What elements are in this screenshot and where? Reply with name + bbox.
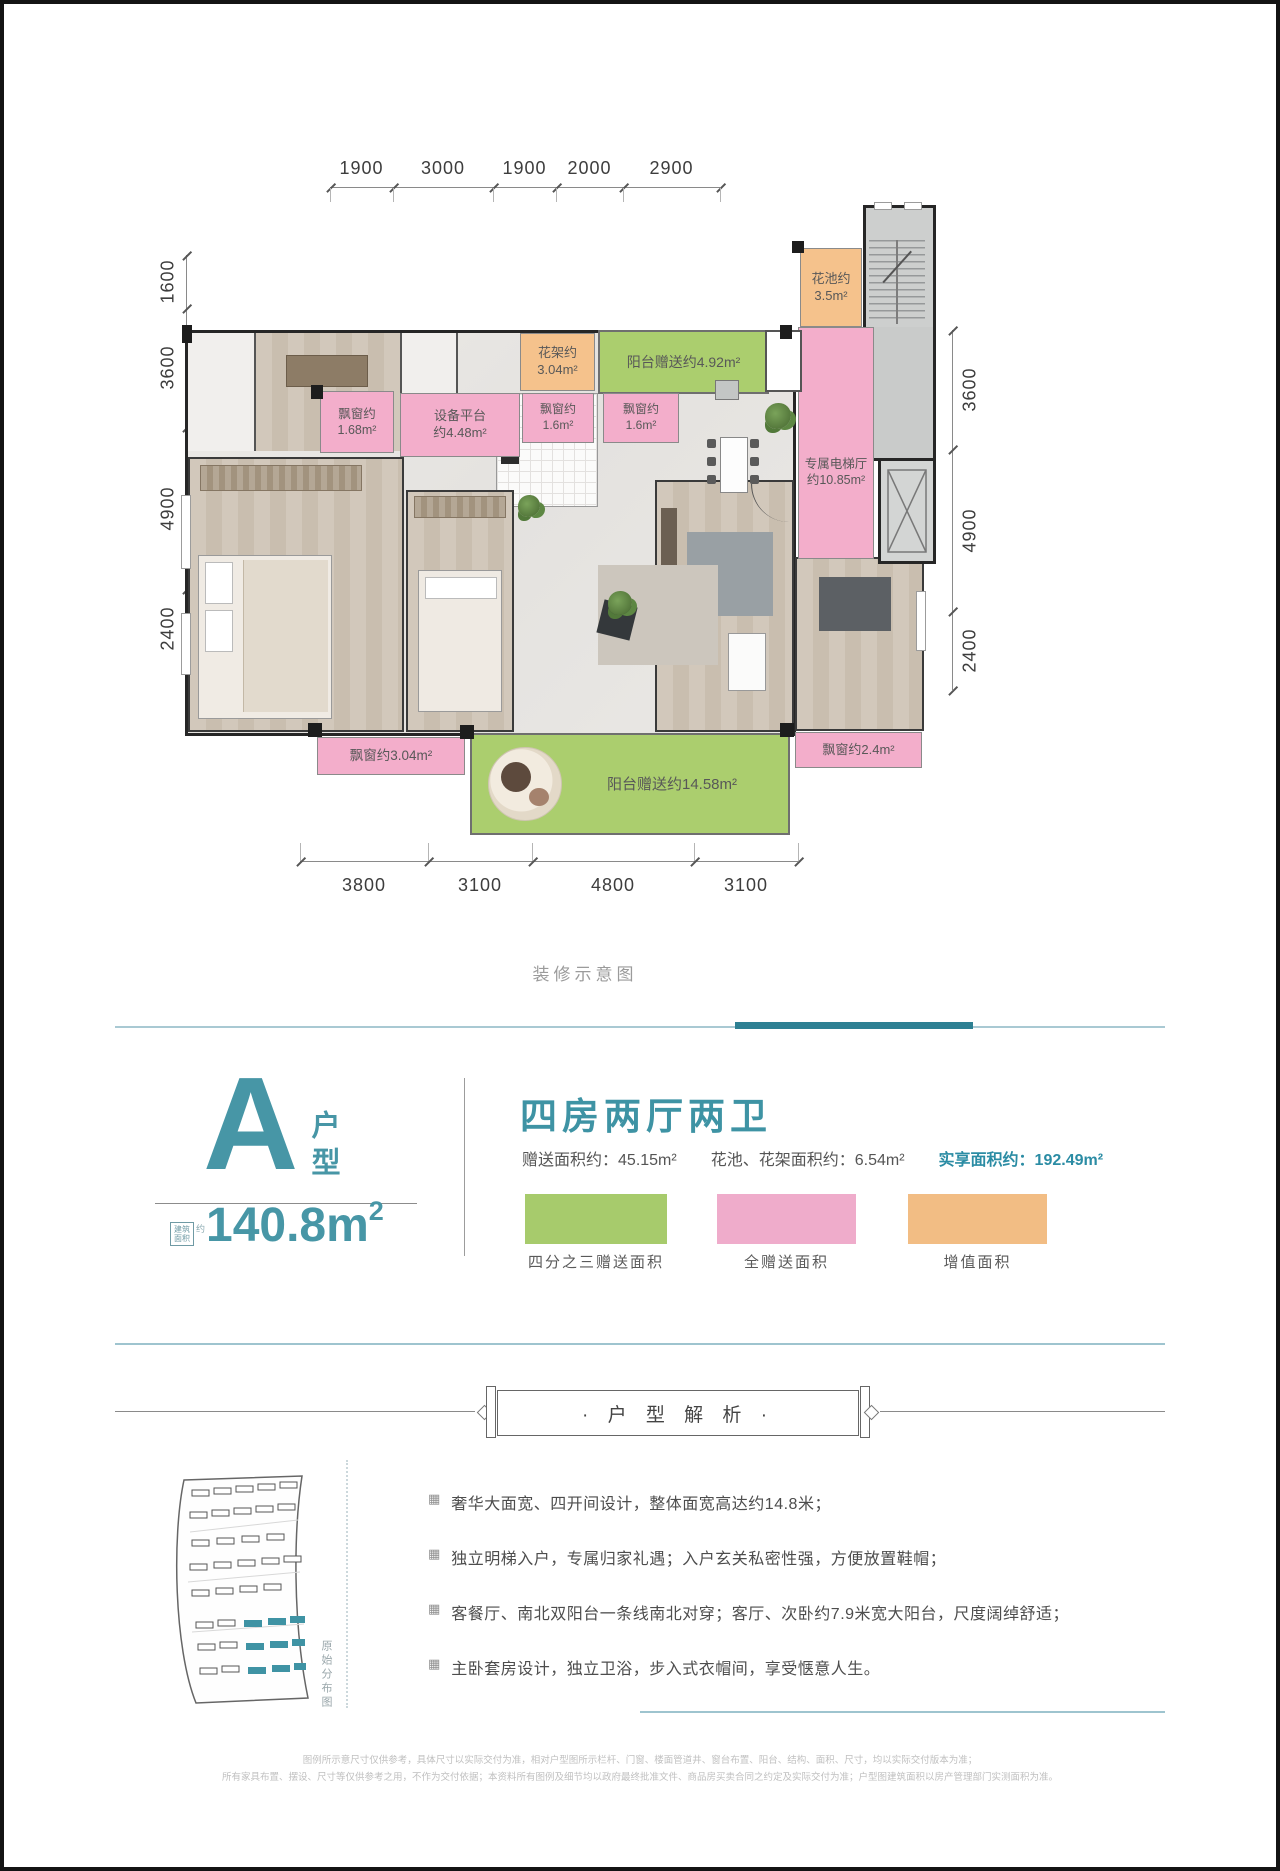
- stat-value: 6.54m²: [855, 1152, 905, 1169]
- wall-segment: [311, 385, 323, 399]
- dimension-label: 2900: [623, 158, 720, 179]
- dimension-label: 4800: [532, 875, 694, 896]
- round-rug: [488, 747, 562, 821]
- chair: [707, 475, 716, 484]
- side-table: [728, 633, 766, 691]
- badge-line2: 面积: [174, 1234, 190, 1243]
- desk: [661, 508, 677, 572]
- wall-segment: [460, 725, 474, 739]
- room-bedroom-4: [795, 557, 924, 731]
- badge-line1: 建筑: [174, 1225, 190, 1234]
- bullet-item: ▦ 主卧套房设计，独立卫浴，步入式衣帽间，享受惬意人生。: [428, 1655, 1078, 1679]
- bay-window-1: 飘窗约 1.68m²: [320, 391, 394, 453]
- extension-line: [532, 843, 533, 861]
- dimension-label: 4900: [960, 491, 981, 571]
- legend-label-pink: 全赠送面积: [717, 1251, 856, 1272]
- dimension-line: [952, 330, 953, 690]
- plan-caption: 装修示意图: [460, 960, 710, 985]
- unit-area: 140.8m2: [206, 1198, 384, 1253]
- bullet-icon: ▦: [428, 1545, 440, 1563]
- bay-window-3-label: 飘窗约: [604, 402, 678, 418]
- ac-unit: [715, 380, 739, 400]
- bay-window-2-label: 飘窗约: [523, 402, 593, 418]
- pillow: [205, 562, 233, 604]
- rug-detail: [501, 762, 531, 792]
- equipment-platform: 设备平台 约4.48m²: [400, 393, 520, 457]
- elevator-x-icon: [881, 461, 933, 561]
- chair: [750, 439, 759, 448]
- extension-line: [300, 843, 301, 861]
- pillow: [425, 577, 497, 599]
- section-divider: [640, 1711, 1165, 1713]
- divider-accent-bar: [735, 1022, 973, 1029]
- bay-window-5: 飘窗约2.4m²: [795, 732, 922, 768]
- wardrobe: [200, 465, 362, 491]
- bullet-item: ▦ 独立明梯入户，专属归家礼遇；入户玄关私密性强，方便放置鞋帽；: [428, 1545, 1078, 1569]
- section-divider: [115, 1026, 1165, 1028]
- badge-approx: 约: [196, 1222, 205, 1235]
- bay-window-3-area: 1.6m²: [604, 418, 678, 434]
- door-arc: [751, 484, 790, 522]
- dimension-tick: [948, 326, 958, 336]
- legend-label-green: 四分之三赠送面积: [525, 1251, 667, 1272]
- bed: [198, 555, 332, 719]
- bay-window-1-area: 1.68m²: [321, 422, 393, 438]
- stair-core-landing: [865, 327, 936, 461]
- disclaimer: 图例所示意尺寸仅供参考，具体尺寸以实际交付为准，相对户型图所示栏杆、门窗、楼面管…: [140, 1752, 1140, 1786]
- dimension-label: 2400: [960, 611, 981, 691]
- blanket: [243, 560, 328, 712]
- entry-nook: [765, 330, 802, 392]
- window: [874, 202, 892, 210]
- stat-flower-area: 花池、花架面积约：6.54m²: [711, 1146, 905, 1170]
- balcony-north-label: 阳台赠送约4.92m²: [600, 353, 767, 371]
- elevator-hall-label: 专属电梯厅: [799, 456, 873, 472]
- stat-label: 花池、花架面积约：: [711, 1152, 855, 1169]
- room-bathroom-1: [188, 333, 256, 451]
- window: [181, 613, 191, 675]
- section-divider: [115, 1343, 1165, 1345]
- wall-segment: [780, 325, 792, 339]
- bullet-item: ▦ 奢华大面宽、四开间设计，整体面宽高达约14.8米；: [428, 1490, 1078, 1514]
- room-bedroom-master: [188, 457, 404, 732]
- bay-window-4: 飘窗约3.04m²: [317, 737, 465, 775]
- balcony-north: 阳台赠送约4.92m²: [598, 330, 769, 394]
- flower-stand-label: 花架约: [521, 345, 594, 362]
- chair: [707, 457, 716, 466]
- wall-segment: [182, 325, 192, 343]
- bay-window-4-label: 飘窗约3.04m²: [318, 747, 464, 765]
- bay-window-2-area: 1.6m²: [523, 418, 593, 434]
- flower-pool-label: 花池约: [801, 271, 861, 288]
- bullet-item: ▦ 客餐厅、南北双阳台一条线南北对穿；客厅、次卧约7.9米宽大阳台，尺度阔绰舒适…: [428, 1600, 1078, 1624]
- window: [916, 591, 926, 651]
- stat-actual-area: 实享面积约：192.49m²: [939, 1146, 1104, 1170]
- vertical-divider: [464, 1078, 465, 1256]
- dimension-tick: [948, 607, 958, 617]
- stairwell: [863, 205, 936, 333]
- banner-line-left: [115, 1411, 475, 1412]
- chair: [707, 439, 716, 448]
- stat-label: 实享面积约：: [939, 1152, 1035, 1169]
- bay-window-2: 飘窗约 1.6m²: [522, 393, 594, 443]
- rooms-title: 四房两厅两卫: [520, 1086, 772, 1140]
- dotted-divider: [346, 1460, 348, 1708]
- stat-value: 192.49m²: [1035, 1152, 1104, 1169]
- disclaimer-line1: 图例所示意尺寸仅供参考，具体尺寸以实际交付为准，相对户型图所示栏杆、门窗、楼面管…: [140, 1752, 1140, 1769]
- chair: [750, 475, 759, 484]
- equipment-platform-area: 约4.48m²: [401, 425, 519, 442]
- area-badge: 建筑 面积 约: [170, 1222, 205, 1246]
- flower-pool-area: 3.5m²: [801, 288, 861, 305]
- dimension-label: 3100: [694, 875, 798, 896]
- stat-gift-area: 赠送面积约：45.15m²: [522, 1146, 677, 1170]
- window: [181, 495, 191, 569]
- elevator-hall-area: 约10.85m²: [799, 472, 873, 488]
- bullet-text: 奢华大面宽、四开间设计，整体面宽高达约14.8米；: [451, 1490, 831, 1514]
- dimension-tick: [948, 445, 958, 455]
- dimension-label: 1900: [493, 158, 556, 179]
- analysis-title: · 户 型 解 析 ·: [582, 1400, 774, 1427]
- unit-letter: A: [203, 1058, 298, 1190]
- disclaimer-line2: 所有家具布置、摆设、尺寸等仅供参考之用，不作为交付依据；本资料所有图例及细节均以…: [140, 1769, 1140, 1786]
- extension-line: [694, 843, 695, 861]
- banner-line-right: [880, 1411, 1165, 1412]
- wall-segment: [792, 241, 804, 253]
- bay-window-5-label: 飘窗约2.4m²: [796, 742, 921, 759]
- bay-window-1-label: 飘窗约: [321, 406, 393, 422]
- bay-window-3: 飘窗约 1.6m²: [603, 393, 679, 443]
- bullet-text: 客餐厅、南北双阳台一条线南北对穿；客厅、次卧约7.9米宽大阳台，尺度阔绰舒适；: [451, 1600, 1069, 1624]
- equipment-platform-label: 设备平台: [401, 408, 519, 425]
- balcony-south-label: 阳台赠送约14.58m²: [572, 775, 772, 795]
- unit-area-value: 140.8m: [206, 1199, 369, 1252]
- bullet-icon: ▦: [428, 1600, 440, 1618]
- legend-label-orange: 增值面积: [908, 1251, 1047, 1272]
- rug-detail: [529, 788, 549, 806]
- wall-segment: [780, 723, 794, 737]
- banner-endcap: [486, 1386, 496, 1438]
- stat-value: 45.15m²: [618, 1152, 677, 1169]
- bullet-text: 主卧套房设计，独立卫浴，步入式衣帽间，享受惬意人生。: [451, 1655, 880, 1679]
- dimension-tick: [948, 686, 958, 696]
- analysis-bullets: ▦ 奢华大面宽、四开间设计，整体面宽高达约14.8米； ▦ 独立明梯入户，专属归…: [428, 1490, 1078, 1710]
- dining-table: [720, 437, 748, 493]
- room-bedroom-2: [406, 490, 514, 732]
- bullet-icon: ▦: [428, 1655, 440, 1673]
- dimension-line: [300, 861, 798, 862]
- dimension-label: 2000: [556, 158, 623, 179]
- rug: [819, 577, 891, 631]
- dimension-label: 3600: [960, 350, 981, 430]
- elevator-shaft: [878, 458, 936, 564]
- bullet-icon: ▦: [428, 1490, 440, 1508]
- dimension-label: 1900: [330, 158, 393, 179]
- extension-line: [428, 843, 429, 861]
- desk: [286, 355, 368, 387]
- dimension-label: 3000: [393, 158, 493, 179]
- dimension-label: 3800: [300, 875, 428, 896]
- extension-line: [798, 843, 799, 861]
- bullet-text: 独立明梯入户，专属归家礼遇；入户玄关私密性强，方便放置鞋帽；: [451, 1545, 946, 1569]
- site-plan-caption: 原始分布图: [318, 1640, 334, 1710]
- pillow: [205, 610, 233, 652]
- legend-swatch-green: [525, 1194, 667, 1244]
- elevator-hall: 专属电梯厅 约10.85m²: [798, 327, 874, 559]
- analysis-banner: · 户 型 解 析 ·: [497, 1390, 859, 1436]
- stat-label: 赠送面积约：: [522, 1152, 618, 1169]
- unit-area-sup: 2: [369, 1196, 384, 1226]
- wardrobe: [414, 496, 506, 518]
- site-plan-sketch: [162, 1472, 317, 1712]
- stair-divider: [896, 240, 898, 324]
- legend-swatch-orange: [908, 1194, 1047, 1244]
- stats-row: 赠送面积约：45.15m² 花池、花架面积约：6.54m² 实享面积约：192.…: [522, 1146, 1103, 1170]
- dimension-label: 3100: [428, 875, 532, 896]
- flower-stand: 花架约 3.04m²: [520, 333, 595, 391]
- flower-stand-area: 3.04m²: [521, 362, 594, 379]
- stair-treads: [898, 240, 925, 324]
- bed: [418, 570, 502, 712]
- unit-type-label: 户型: [302, 1110, 344, 1184]
- dimension-line: [330, 187, 720, 188]
- legend-swatch-pink: [717, 1194, 856, 1244]
- window: [904, 202, 922, 210]
- flower-pool: 花池约 3.5m²: [800, 248, 862, 327]
- site-plan-svg: [162, 1472, 317, 1707]
- balcony-south: 阳台赠送约14.58m²: [470, 733, 790, 835]
- chair: [750, 457, 759, 466]
- floor-plan: 花池约 3.5m² 专属电梯厅 约10.85m² 花架约 3.04m² 阳台赠送…: [168, 195, 930, 845]
- wall-segment: [308, 723, 322, 737]
